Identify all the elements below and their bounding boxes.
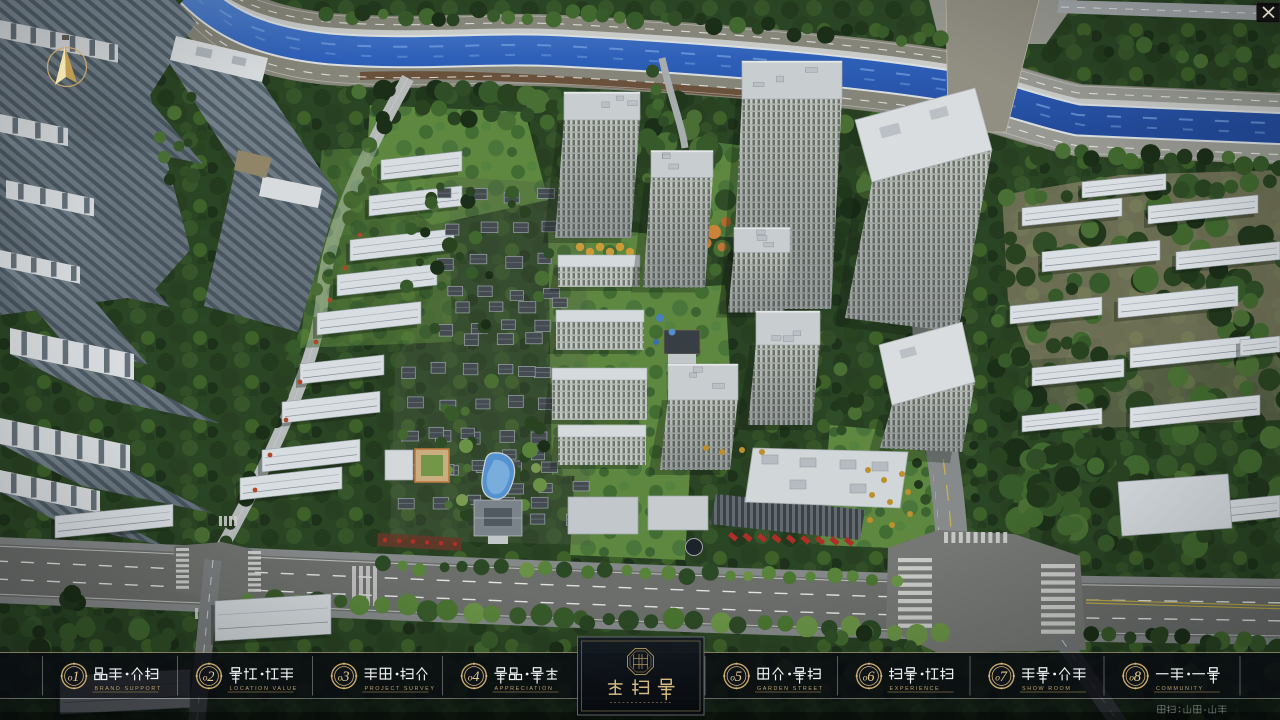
svg-text:APPRECIATION: APPRECIATION — [495, 686, 554, 692]
svg-text:6: 6 — [867, 669, 875, 685]
svg-text:7: 7 — [1000, 669, 1008, 685]
svg-text:1: 1 — [72, 669, 79, 685]
svg-text:GARDEN STREET: GARDEN STREET — [757, 686, 824, 692]
svg-text:4: 4 — [472, 669, 479, 685]
svg-text:5: 5 — [735, 669, 742, 685]
svg-text:2: 2 — [207, 669, 214, 685]
svg-text:SHOW ROOM: SHOW ROOM — [1022, 686, 1071, 692]
svg-text:COMMUNITY: COMMUNITY — [1156, 686, 1204, 692]
svg-text:LOCATION VALUE: LOCATION VALUE — [230, 686, 298, 692]
svg-text:8: 8 — [1134, 669, 1142, 685]
svg-text:EXPERIENCE: EXPERIENCE — [890, 686, 941, 692]
svg-text:BRAND SUPPORT: BRAND SUPPORT — [95, 686, 162, 692]
svg-text:3: 3 — [341, 669, 349, 685]
svg-text:PROJECT SURVEY: PROJECT SURVEY — [365, 686, 436, 692]
